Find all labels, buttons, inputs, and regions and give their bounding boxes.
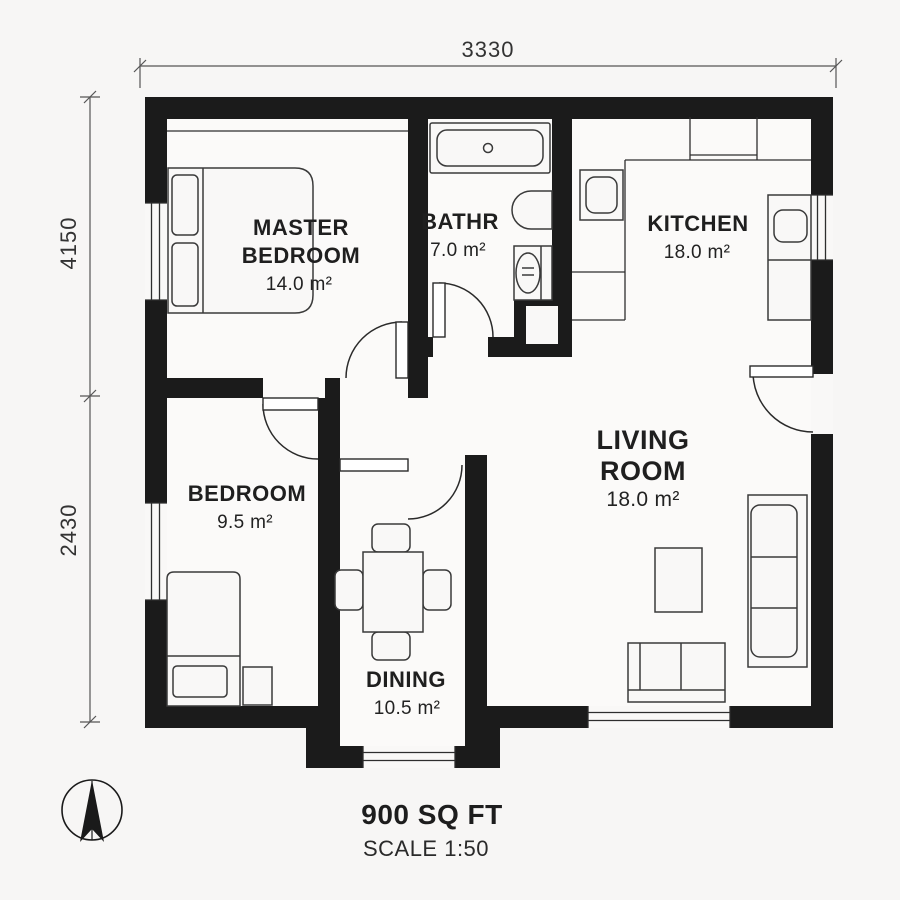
pillow bbox=[172, 175, 198, 235]
room-label-kitchen: KITCHEN bbox=[647, 211, 748, 236]
room-area-bedroom: 9.5 m² bbox=[217, 512, 273, 533]
room-area-dining: 10.5 m² bbox=[374, 698, 441, 719]
loveseat bbox=[628, 643, 725, 702]
dining-table bbox=[363, 552, 423, 632]
dining-window bbox=[363, 746, 455, 768]
room-area-kitchen: 18.0 m² bbox=[664, 242, 731, 263]
duct-shaft-void bbox=[526, 306, 558, 344]
dimension-top-label: 3330 bbox=[462, 37, 515, 62]
dining-chair-top bbox=[372, 524, 410, 552]
room-label-master-bedroom-line1: MASTER bbox=[253, 215, 349, 240]
exterior-door-opening bbox=[811, 374, 833, 434]
dimension-left-upper-label: 4150 bbox=[56, 217, 81, 270]
room-area-bathroom: 7.0 m² bbox=[430, 240, 486, 261]
dining-chair-bottom bbox=[372, 632, 410, 660]
toilet bbox=[514, 246, 552, 300]
single-bed bbox=[167, 572, 240, 706]
hall-wall-stub bbox=[325, 378, 340, 398]
coffee-table bbox=[655, 548, 702, 612]
room-label-dining: DINING bbox=[366, 667, 446, 692]
room-area-living-room: 18.0 m² bbox=[606, 488, 679, 511]
room-label-bathroom: BATHR bbox=[421, 209, 499, 234]
west-wall bbox=[145, 97, 167, 728]
dining-chair-left bbox=[335, 570, 363, 610]
bathroom-south-wall-left bbox=[408, 337, 433, 357]
pillow bbox=[173, 666, 227, 697]
pillow bbox=[172, 243, 198, 306]
dining-chair-right bbox=[423, 570, 451, 610]
bathtub bbox=[430, 123, 550, 173]
kitchen-sink-counter bbox=[768, 195, 811, 320]
footer-scale-text: SCALE 1:50 bbox=[363, 836, 489, 861]
living-room-window bbox=[588, 706, 730, 728]
kitchen-window bbox=[811, 195, 833, 260]
room-label-bedroom: BEDROOM bbox=[188, 481, 306, 506]
bath-kitchen-divider-wall bbox=[552, 117, 572, 298]
footer-area-text: 900 SQ FT bbox=[361, 799, 502, 830]
dining-living-divider-wall bbox=[465, 455, 487, 728]
south-wall-left bbox=[145, 706, 318, 728]
master-bedroom-window bbox=[145, 203, 167, 300]
room-area-master-bedroom: 14.0 m² bbox=[266, 274, 333, 295]
bedroom-dining-divider-wall bbox=[318, 398, 340, 728]
floor-plan: 3330 4150 2430 MASTER BEDROOM 14.0 m² BA… bbox=[0, 0, 900, 900]
nightstand bbox=[243, 667, 272, 705]
room-label-living-room-line2: ROOM bbox=[600, 456, 686, 486]
north-wall bbox=[145, 97, 833, 119]
room-label-living-room-line1: LIVING bbox=[596, 425, 689, 455]
bathroom-sink bbox=[512, 191, 552, 229]
bedroom-window bbox=[145, 503, 167, 600]
stove bbox=[580, 170, 623, 220]
room-label-master-bedroom-line2: BEDROOM bbox=[242, 243, 360, 268]
dimension-left-lower-label: 2430 bbox=[56, 504, 81, 557]
sofa bbox=[748, 495, 807, 667]
master-bedroom-south-wall bbox=[167, 378, 263, 398]
